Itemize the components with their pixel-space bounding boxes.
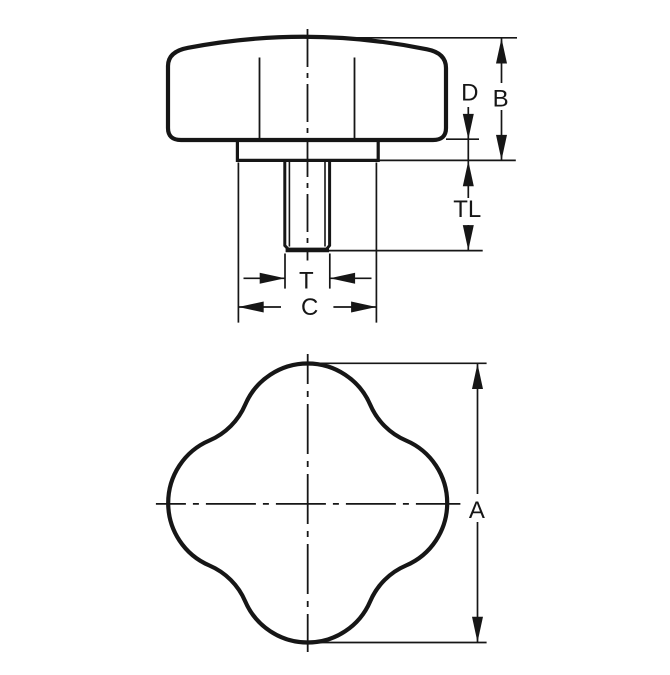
svg-text:TL: TL (453, 196, 481, 223)
svg-text:C: C (301, 294, 318, 321)
svg-text:D: D (461, 80, 478, 107)
svg-text:A: A (469, 497, 485, 524)
svg-text:B: B (493, 85, 509, 112)
svg-text:T: T (299, 268, 314, 295)
